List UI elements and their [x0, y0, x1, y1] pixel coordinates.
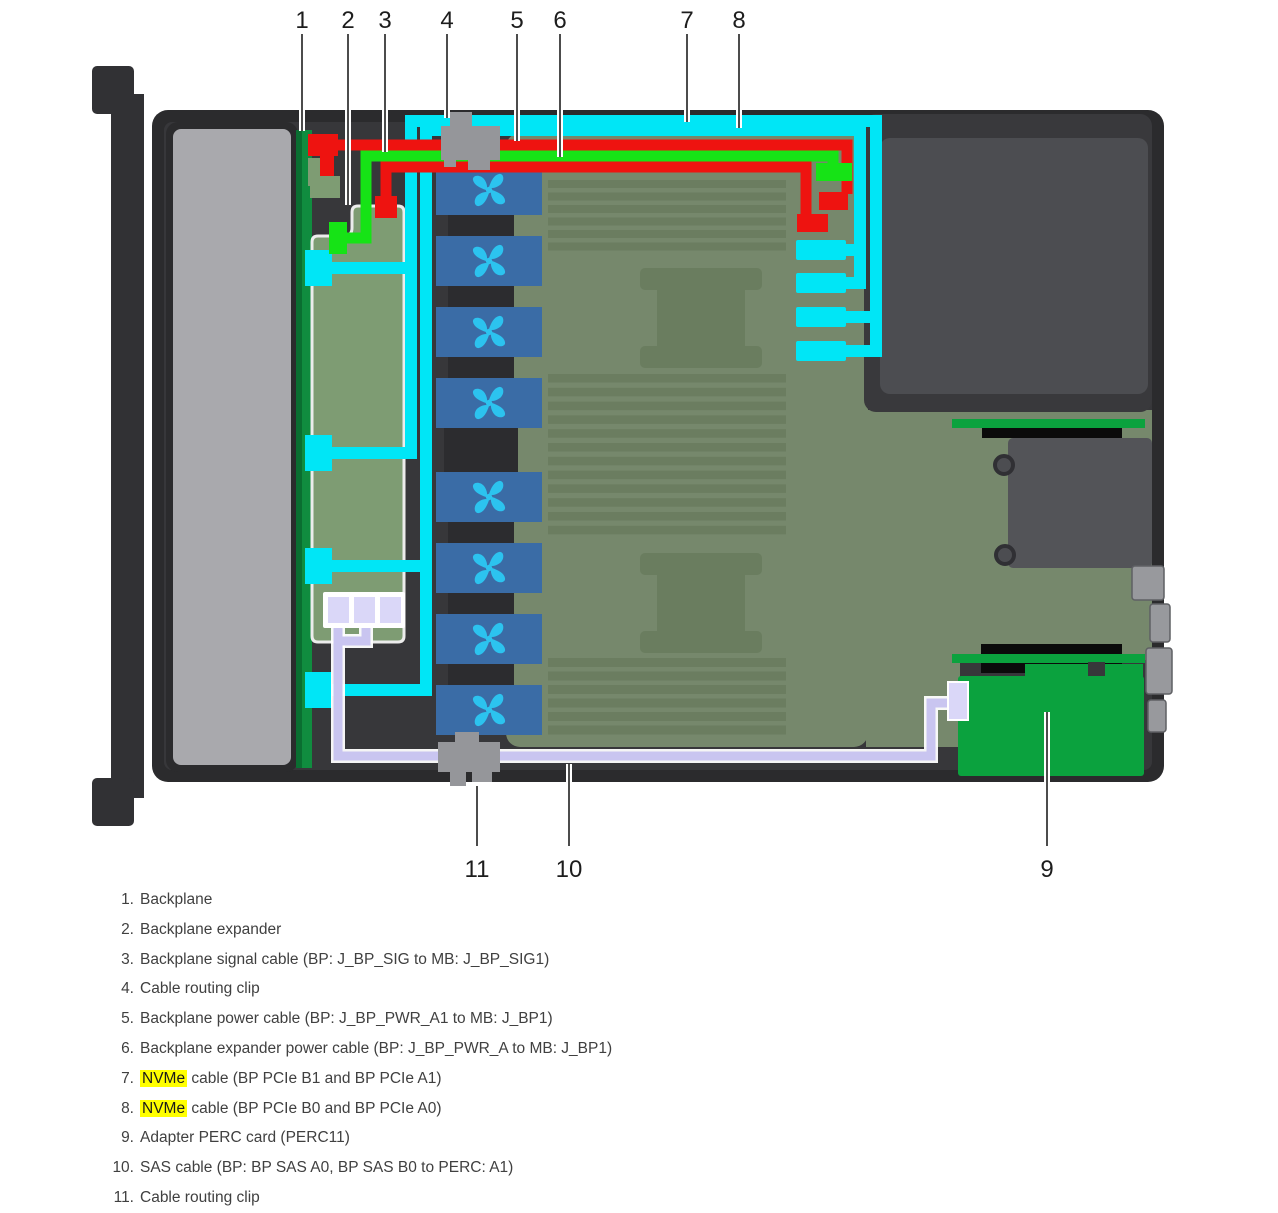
screw-hole	[995, 456, 1013, 474]
perc-card	[958, 662, 1144, 776]
fan-connector	[444, 428, 518, 472]
fan-connector	[448, 522, 514, 543]
legend-item-4: 4.Cable routing clip	[98, 974, 260, 1004]
callout-8: 8	[732, 7, 745, 34]
legend-item-number: 7.	[98, 1070, 134, 1088]
legend-item-text: NVMe cable (BP PCIe B0 and BP PCIe A0)	[140, 1100, 442, 1118]
page: 1 2 3 4 5 6 7 8 11 10 9 1.Backplane2.Bac…	[0, 0, 1278, 1213]
dimm-slot	[548, 388, 786, 397]
fan-module	[436, 685, 542, 735]
dimm-slot	[548, 230, 786, 238]
legend-item-3: 3.Backplane signal cable (BP: J_BP_SIG t…	[98, 945, 549, 975]
dimm-slot	[548, 415, 786, 424]
legend-item-number: 8.	[98, 1100, 134, 1118]
legend-item-number: 4.	[98, 980, 134, 998]
legend-item-text: Backplane expander power cable (BP: J_BP…	[140, 1040, 612, 1058]
dimm-slot	[548, 374, 786, 383]
legend-item-text: NVMe cable (BP PCIe B1 and BP PCIe A1)	[140, 1070, 442, 1088]
fan-connector	[448, 357, 514, 378]
dimm-slot	[548, 218, 786, 226]
legend-item-text: Cable routing clip	[140, 980, 260, 998]
fan-module	[436, 378, 542, 428]
bp-pcie-connector	[305, 435, 332, 471]
legend-item-number: 3.	[98, 951, 134, 969]
psu-bay	[864, 114, 1152, 412]
cable-routing-diagram: 1 2 3 4 5 6 7 8 11 10 9	[0, 0, 1278, 888]
fan-module	[436, 472, 542, 522]
fan-module	[436, 543, 542, 593]
fan-connector	[448, 593, 514, 614]
legend-item-number: 6.	[98, 1040, 134, 1058]
legend-item-number: 10.	[98, 1159, 134, 1177]
riser-bar	[952, 654, 1145, 663]
legend-item-text: Backplane signal cable (BP: J_BP_SIG to …	[140, 951, 549, 969]
dimm-slot	[548, 672, 786, 681]
legend-item-1: 1.Backplane	[98, 885, 212, 915]
mb-sig-connector	[819, 192, 848, 210]
bp-pcie-connector	[305, 672, 332, 708]
io-port	[1150, 604, 1170, 642]
fan-module	[436, 307, 542, 357]
backplane-edge	[296, 130, 302, 768]
drive-bay	[166, 122, 298, 772]
legend-item-10: 10.SAS cable (BP: BP SAS A0, BP SAS B0 t…	[98, 1153, 513, 1183]
dimm-slot	[548, 205, 786, 213]
mb-pcie-connector	[796, 341, 846, 361]
dimm-slot	[548, 699, 786, 708]
dimm-slot	[548, 471, 786, 480]
legend-item-5: 5.Backplane power cable (BP: J_BP_PWR_A1…	[98, 1004, 553, 1034]
bp-sas-a0-connector	[327, 596, 350, 624]
legend-item-text: Adapter PERC card (PERC11)	[140, 1129, 350, 1147]
legend-item-2: 2.Backplane expander	[98, 915, 281, 945]
mb-pcie-connector	[796, 273, 846, 293]
bracket-panel-body	[1008, 438, 1152, 568]
mb-pcie-connector	[796, 307, 846, 327]
io-port	[1132, 566, 1164, 600]
expander-pwr-connector	[375, 196, 397, 218]
mb-power-connector	[816, 163, 852, 181]
legend-item-6: 6.Backplane expander power cable (BP: J_…	[98, 1034, 612, 1064]
highlighted-term: NVMe	[140, 1100, 187, 1117]
legend-item-number: 11.	[98, 1189, 134, 1207]
callout-7: 7	[680, 7, 693, 34]
backplane-tab	[310, 176, 340, 198]
expander-power-connector	[329, 222, 347, 254]
bp-pcie-connector	[305, 250, 332, 286]
bp-sig-connector	[320, 152, 334, 176]
screw-hole	[996, 546, 1014, 564]
rack-ear-bar	[111, 94, 144, 798]
callout-5: 5	[510, 7, 523, 34]
dimm-slot	[548, 498, 786, 507]
callout-9: 9	[1040, 856, 1053, 883]
legend-item-8: 8.NVMe cable (BP PCIe B0 and BP PCIe A0)	[98, 1094, 442, 1124]
legend-item-7: 7.NVMe cable (BP PCIe B1 and BP PCIe A1)	[98, 1064, 442, 1094]
legend-item-number: 2.	[98, 921, 134, 939]
dimm-slot	[548, 443, 786, 452]
bp-pcie-connector	[305, 548, 332, 584]
mb-pwr-connector	[797, 214, 828, 232]
legend-item-text: Backplane	[140, 891, 212, 909]
bp-sas-b0-connector	[353, 596, 376, 624]
fan-module	[436, 236, 542, 286]
perc-a1-connector	[948, 682, 968, 720]
legend-item-number: 1.	[98, 891, 134, 909]
legend-item-9: 9.Adapter PERC card (PERC11)	[98, 1123, 350, 1153]
psu-box	[880, 138, 1148, 394]
dimm-slot	[548, 726, 786, 735]
callout-10: 10	[556, 856, 583, 883]
legend-item-11: 11.Cable routing clip	[98, 1183, 260, 1213]
legend-item-text: Cable routing clip	[140, 1189, 260, 1207]
callout-2: 2	[341, 7, 354, 34]
bp-sas-spare-connector	[379, 596, 402, 624]
callout-1: 1	[295, 7, 308, 34]
cpu-socket-2	[640, 553, 762, 653]
dimm-slot	[548, 685, 786, 694]
fan-connector	[448, 286, 514, 307]
dimm-slot	[548, 712, 786, 721]
rack-ear	[92, 66, 144, 826]
dimm-slot	[548, 457, 786, 466]
drive-bay-panel	[173, 129, 291, 765]
dimm-slot	[548, 193, 786, 201]
io-port	[1148, 700, 1166, 732]
legend-item-text: SAS cable (BP: BP SAS A0, BP SAS B0 to P…	[140, 1159, 513, 1177]
legend-item-text: Backplane expander	[140, 921, 281, 939]
perc-card-body	[958, 676, 1144, 776]
callout-6: 6	[553, 7, 566, 34]
mb-pcie-connector	[796, 240, 846, 260]
callout-11: 11	[465, 856, 490, 883]
bracket-panel	[995, 438, 1152, 568]
highlighted-term: NVMe	[140, 1070, 187, 1087]
dimm-slot	[548, 402, 786, 411]
dimm-slot	[548, 243, 786, 251]
dimm-slot	[548, 484, 786, 493]
io-port	[1146, 648, 1172, 694]
riser-bar	[952, 419, 1145, 428]
legend-item-number: 9.	[98, 1129, 134, 1147]
legend-item-number: 5.	[98, 1010, 134, 1028]
fan-connector	[448, 664, 514, 685]
fan-module	[436, 614, 542, 664]
callout-3: 3	[378, 7, 391, 34]
callout-4: 4	[440, 7, 453, 34]
dimm-slot	[548, 512, 786, 521]
legend-item-text: Backplane power cable (BP: J_BP_PWR_A1 t…	[140, 1010, 553, 1028]
cpu-socket-1	[640, 268, 762, 368]
dimm-slot	[548, 180, 786, 188]
dimm-slot	[548, 658, 786, 667]
fan-connector	[448, 215, 514, 236]
dimm-slot	[548, 429, 786, 438]
dimm-slot	[548, 526, 786, 535]
rack-ear-bottom-tab	[92, 778, 134, 826]
riser-slot	[982, 428, 1122, 438]
